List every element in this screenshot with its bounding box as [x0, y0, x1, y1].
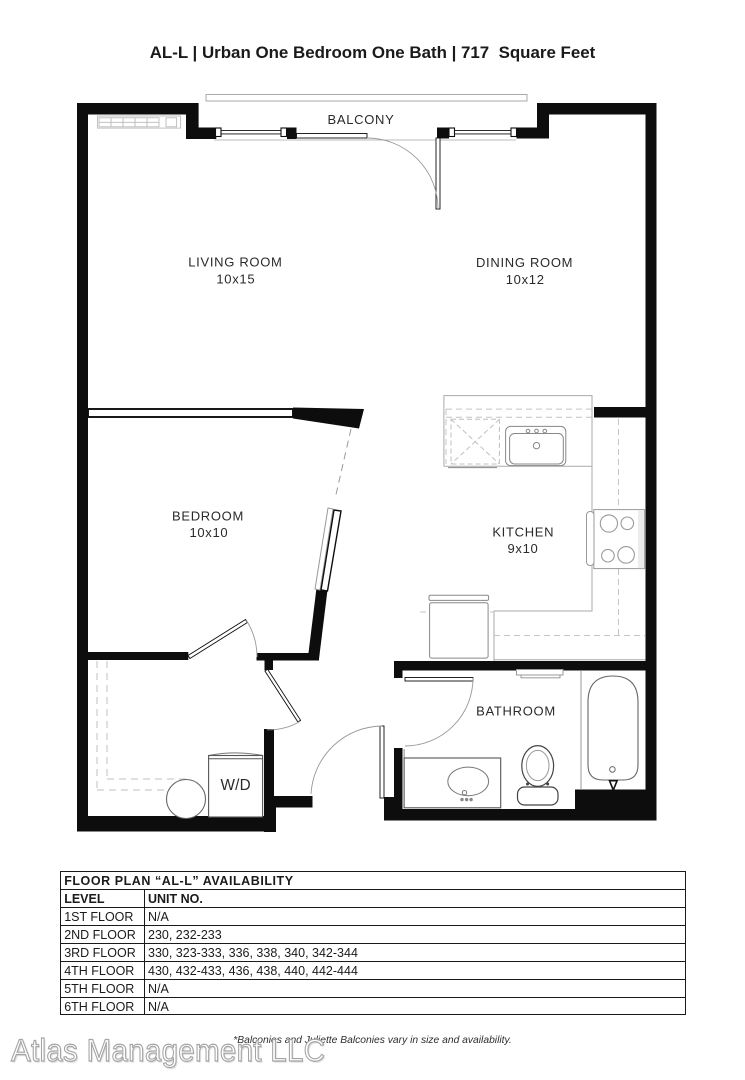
- svg-text:10x10: 10x10: [189, 525, 228, 540]
- svg-text:LIVING ROOM: LIVING ROOM: [188, 254, 282, 269]
- svg-text:10x12: 10x12: [506, 272, 545, 287]
- svg-text:KITCHEN: KITCHEN: [492, 524, 554, 539]
- svg-text:10x15: 10x15: [216, 271, 255, 286]
- svg-text:9x10: 9x10: [508, 541, 539, 556]
- svg-text:DINING ROOM: DINING ROOM: [476, 255, 573, 270]
- svg-text:BEDROOM: BEDROOM: [172, 508, 244, 523]
- svg-text:BATHROOM: BATHROOM: [476, 704, 556, 719]
- svg-text:BALCONY: BALCONY: [327, 112, 394, 127]
- svg-text:W/D: W/D: [221, 777, 251, 794]
